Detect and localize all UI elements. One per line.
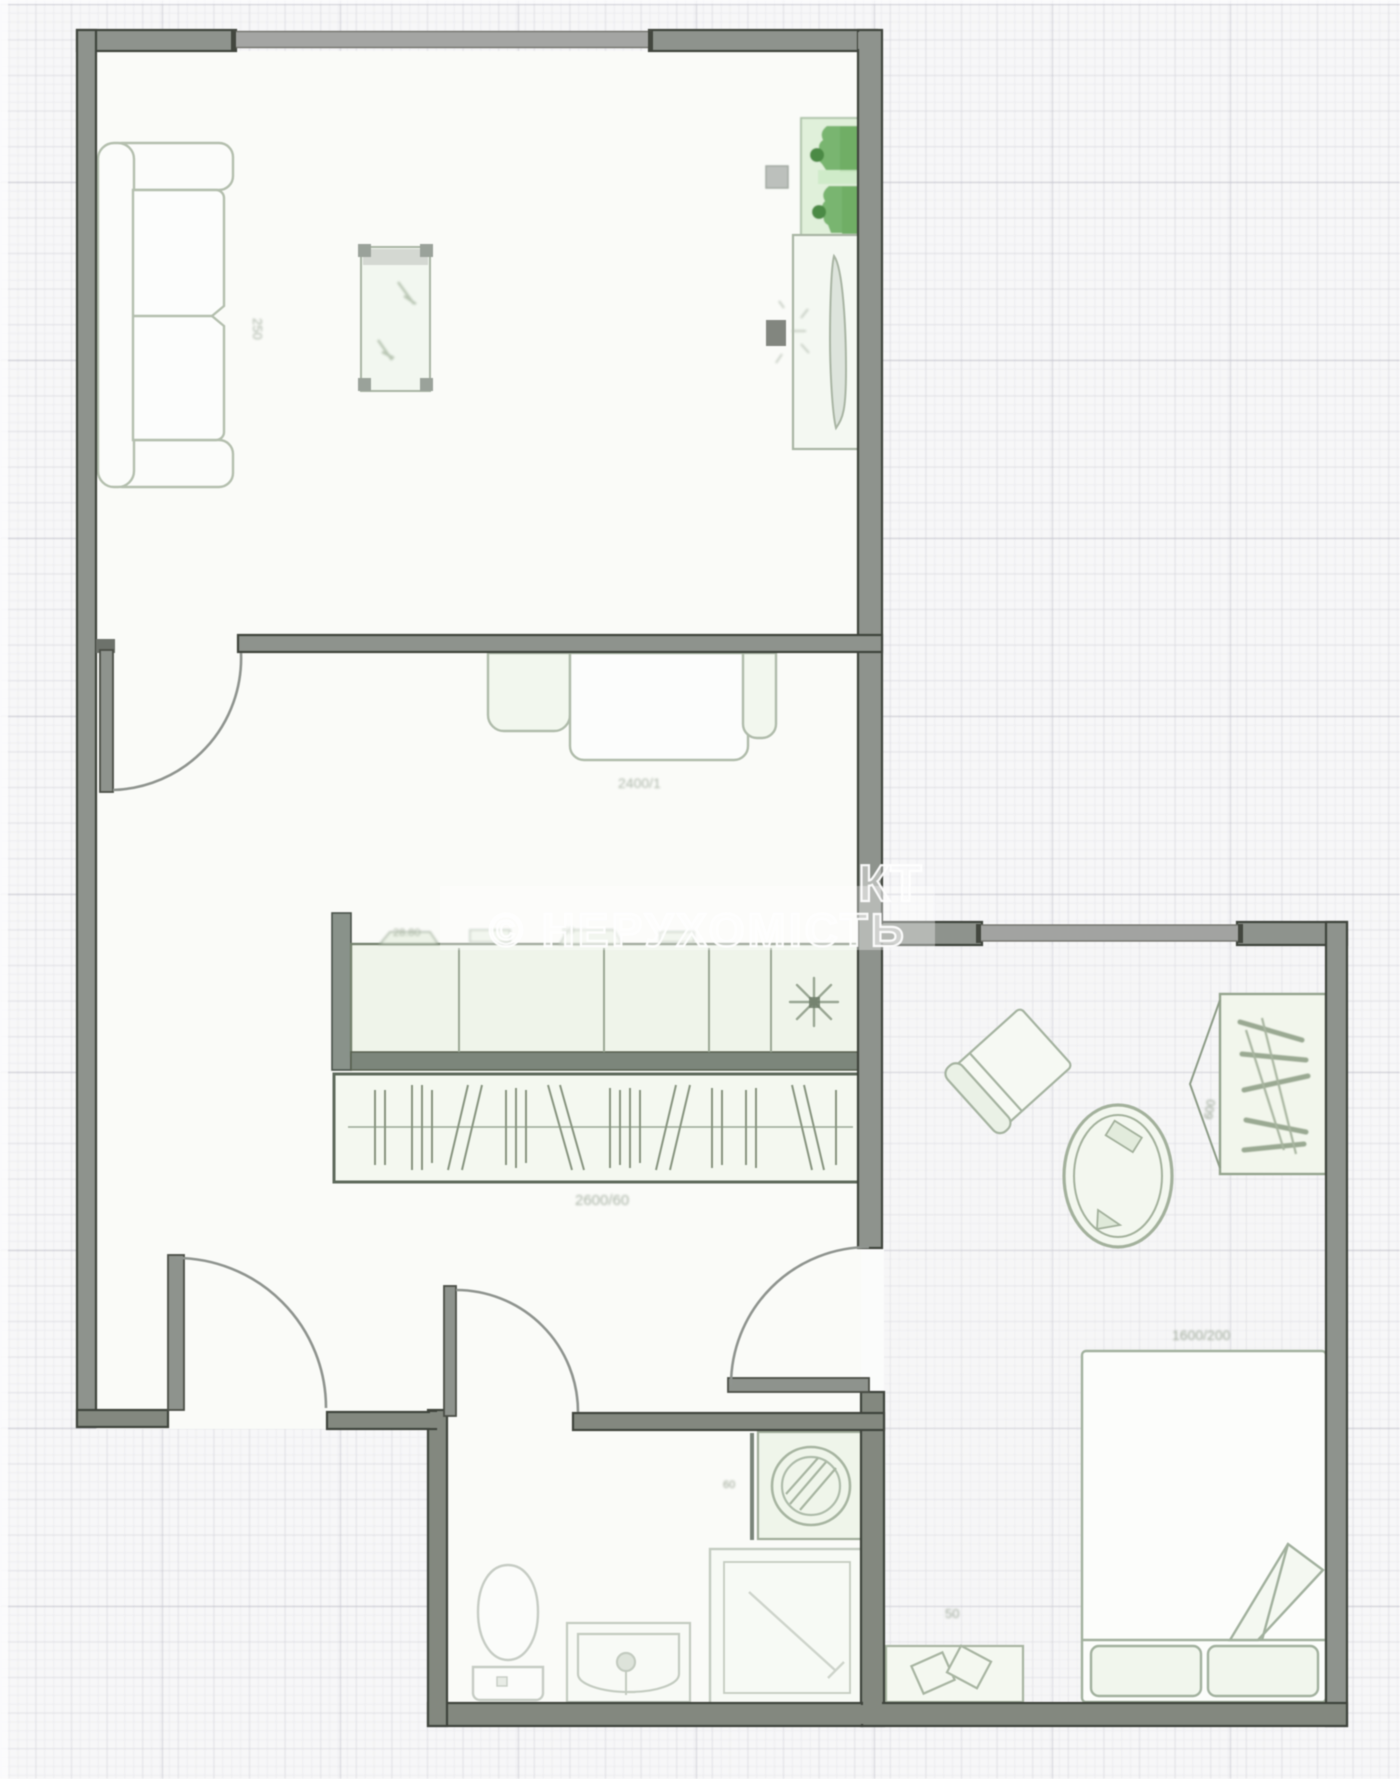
svg-text:2400/1: 2400/1	[618, 775, 661, 791]
svg-text:60: 60	[723, 1479, 735, 1491]
svg-text:250: 250	[250, 318, 265, 340]
svg-text:28.80: 28.80	[393, 927, 421, 939]
svg-text:© НЕРУХОМІСТЬ: © НЕРУХОМІСТЬ	[489, 904, 907, 956]
svg-text:2600/60: 2600/60	[575, 1192, 629, 1209]
svg-text:1600/200: 1600/200	[1172, 1327, 1231, 1343]
svg-text:50: 50	[945, 1606, 959, 1621]
